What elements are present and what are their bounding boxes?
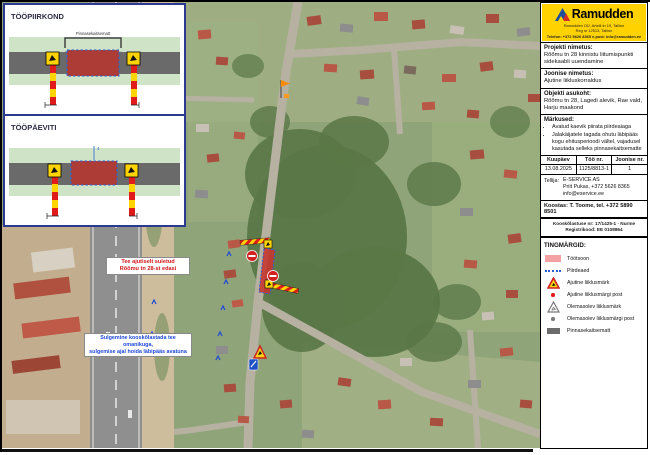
roadwork-sign-icon xyxy=(547,277,560,289)
legend-row-temp-sign: Ajutine liiklusmärk xyxy=(544,277,644,289)
existing-sign-icon xyxy=(547,301,560,313)
meta-drawingnr-value: 1 xyxy=(612,166,647,172)
approval-line: Registrikood: EE 0108864 xyxy=(542,227,646,233)
brand-contact-line: Telefon: +372 5626 8365 e-post: info@ram… xyxy=(544,34,644,39)
client-section: Tellija: E-SERVICE AS Priit Pukas, +372 … xyxy=(541,174,647,200)
title-block-panel: Ramudden Ramudden OÜ, Artelli tn 19, Tal… xyxy=(540,2,648,449)
client-email: info@eservice.ee xyxy=(563,191,645,198)
vehicle xyxy=(128,410,132,418)
legend: TINGMÄRGID: Töötsoon Piirdeaed Ajutine l… xyxy=(541,238,647,337)
legend-label: Töötsoon xyxy=(567,256,589,262)
location-section: Objekti asukoht: Rõõmu tn 28, Lagedi ale… xyxy=(541,88,647,114)
project-name-value: Rõõmu tn 28 kinnistu liitumispunkti side… xyxy=(544,52,644,66)
meta-drawingnr-cell: Joonise nr. 1 xyxy=(612,156,647,174)
client-label: Tellija: xyxy=(541,175,561,200)
meta-date-value: 13.08.2025 xyxy=(541,166,576,172)
legend-row-existing-sign: Olemasolev liiklusmärk xyxy=(544,301,644,313)
legend-row-workzone: Töötsoon xyxy=(544,253,644,265)
location-label: Objekti asukoht: xyxy=(544,91,644,97)
meta-date-header: Kuupäev xyxy=(541,157,576,165)
project-name-label: Projekti nimetus: xyxy=(544,45,644,51)
meta-table: Kuupäev 13.08.2025 Töö nr. 1125/8813-1 J… xyxy=(541,155,647,174)
dimension-ticks xyxy=(47,213,137,219)
coordination-callout-line1: Sulgemine kooskõlastada tee omanikuga, xyxy=(87,335,189,349)
drawing-name-section: Joonise nimetus: Ajutine liikluskorraldu… xyxy=(541,68,647,87)
location-value: Rõõmu tn 28, Lagedi alevik, Rae vald, Ha… xyxy=(544,98,644,112)
legend-label: Olemasolev liiklusmärk xyxy=(567,304,621,310)
closure-callout-line1: Tee ajutiselt suletud xyxy=(109,259,187,266)
legend-label: Ajutine liiklusmärgi post xyxy=(567,292,622,298)
ramudden-logo-icon xyxy=(555,8,570,21)
no-entry-sign xyxy=(247,251,258,262)
meta-worknr-value: 1125/8813-1 xyxy=(577,166,612,172)
detail-drawings-inset: TÖÖPIIRKOND Pinnasekaitsematt xyxy=(3,3,186,227)
meta-worknr-header: Töö nr. xyxy=(577,157,612,165)
coordination-callout: Sulgemine kooskõlastada tee omanikuga, s… xyxy=(84,333,192,357)
notes-label: Märkused: xyxy=(544,117,644,123)
legend-label: Ajutine liiklusmärk xyxy=(567,280,609,286)
notes-section: Märkused: Avatud kaevik piirata piirdeai… xyxy=(541,114,647,156)
meta-date-cell: Kuupäev 13.08.2025 xyxy=(541,156,577,174)
fence-dashed-icon xyxy=(545,270,561,272)
brand-name: Ramudden xyxy=(572,7,633,21)
coordination-callout-line2: sulgemise ajal hoida läbipääs avatuna xyxy=(87,349,189,356)
approval-block: Kooskõlastuse nr: 17/1425-1 · Nurme Regi… xyxy=(541,217,647,238)
gray-post-dot-icon xyxy=(551,317,555,321)
drawing-workday: TÖÖPÄEVITI 4 xyxy=(5,116,184,225)
client-company: E-SERVICE AS xyxy=(563,177,645,184)
construction-site xyxy=(2,225,90,448)
workzone-swatch xyxy=(545,255,561,262)
note-item: Jalakäijatele tagada ohutu läbipääs kogu… xyxy=(552,132,644,153)
client-contact: Priit Pukas, +372 5626 8365 xyxy=(563,184,645,191)
brand-header: Ramudden Ramudden OÜ, Artelli tn 19, Tal… xyxy=(542,4,646,41)
roadwork-warning-sign xyxy=(264,240,272,248)
legend-row-mat: Pinnasekaitsematt xyxy=(544,325,644,337)
drawing1-title: TÖÖPIIRKOND xyxy=(11,12,65,21)
dimension-ticks xyxy=(45,102,139,108)
legend-label: Olemasolev liiklusmärgi post xyxy=(567,316,634,322)
legend-row-temp-post: Ajutine liiklusmärgi post xyxy=(544,289,644,301)
legend-label: Piirdeaed xyxy=(567,268,589,274)
legend-row-fence: Piirdeaed xyxy=(544,265,644,277)
red-post-dot-icon xyxy=(551,293,555,297)
author-line: Koostas: T. Toome, tel. +372 5890 8501 xyxy=(541,200,647,217)
sheet-bottom-rule xyxy=(0,449,533,452)
note-item: Avatud kaevik piirata piirdeaiaga xyxy=(552,124,644,131)
drawing-name-label: Joonise nimetus: xyxy=(544,71,644,77)
legend-label: Pinnasekaitsematt xyxy=(567,328,610,334)
closure-callout: Tee ajutiselt suletud Rõõmu tn 28-st eda… xyxy=(106,257,190,275)
closure-callout-line2: Rõõmu tn 28-st edasi xyxy=(109,266,187,273)
drawing2-title: TÖÖPÄEVITI xyxy=(11,123,56,132)
drawing1-bracket-label: Pinnasekaitsematt xyxy=(76,31,111,36)
legend-title: TINGMÄRGID: xyxy=(544,242,644,249)
no-entry-sign xyxy=(268,271,279,282)
ground-mat-swatch xyxy=(547,328,560,334)
sheet-left-rule xyxy=(0,0,2,452)
project-name-section: Projekti nimetus: Rõõmu tn 28 kinnistu l… xyxy=(541,42,647,68)
info-sign-blue xyxy=(249,359,258,370)
meta-worknr-cell: Töö nr. 1125/8813-1 xyxy=(577,156,613,174)
sheet-top-rule xyxy=(0,0,650,2)
drawing-name-value: Ajutine liikluskorraldus xyxy=(544,78,644,85)
meta-drawingnr-header: Joonise nr. xyxy=(612,157,647,165)
drawing-workzone: TÖÖPIIRKOND Pinnasekaitsematt xyxy=(5,5,184,116)
legend-row-existing-post: Olemasolev liiklusmärgi post xyxy=(544,313,644,325)
